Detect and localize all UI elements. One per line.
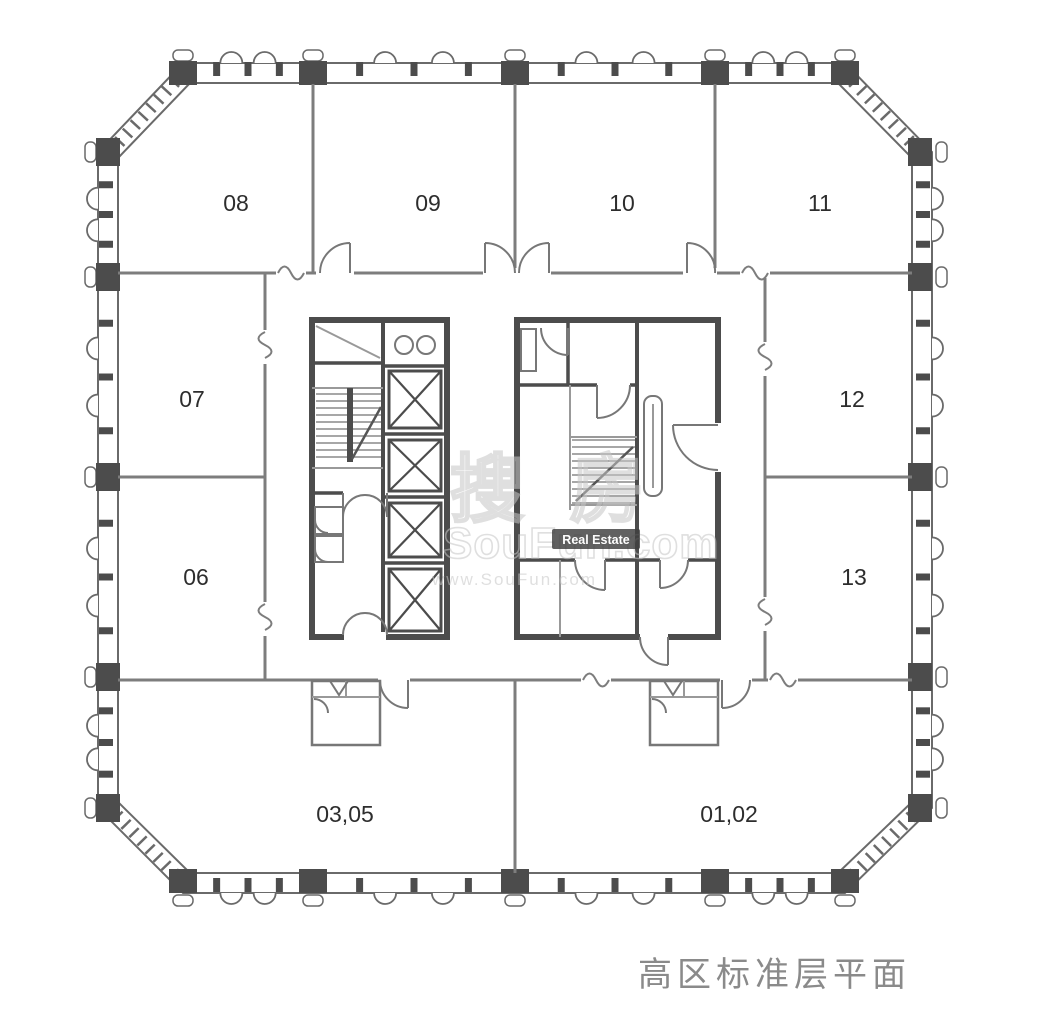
- plan-caption: 高区标准层平面: [638, 955, 911, 995]
- room-label-03-05: 03,05: [316, 801, 374, 827]
- room-label-12: 12: [839, 386, 865, 412]
- watermark-badge: Real Estate: [552, 529, 640, 549]
- elevator-icon: [389, 503, 441, 557]
- room-label-07: 07: [179, 386, 205, 412]
- floor-plan-page: 08 09 10 11 07 12 06 13 03,05 01,02 搜房 S…: [0, 0, 1056, 1024]
- watermark: 搜房 SouFun.com www.SouFun.com: [431, 447, 719, 589]
- room-label-11: 11: [808, 190, 832, 216]
- badge-label: Real Estate: [562, 533, 629, 547]
- elevator-icon: [389, 371, 441, 428]
- room-label-09: 09: [415, 190, 441, 216]
- room-label-13: 13: [841, 564, 867, 590]
- core-left: [312, 320, 447, 642]
- room-label-06: 06: [183, 564, 209, 590]
- watermark-url: www.SouFun.com: [431, 570, 597, 589]
- service-room-right: [650, 681, 718, 745]
- service-closets: [315, 507, 343, 562]
- floor-plan-canvas: 08 09 10 11 07 12 06 13 03,05 01,02 搜房 S…: [0, 0, 1056, 1024]
- room-label-08: 08: [223, 190, 249, 216]
- room-label-10: 10: [609, 190, 635, 216]
- service-room-left: [312, 681, 380, 745]
- room-label-01-02: 01,02: [700, 801, 758, 827]
- wc-fixture: [521, 329, 536, 371]
- elevator-icon: [389, 440, 441, 491]
